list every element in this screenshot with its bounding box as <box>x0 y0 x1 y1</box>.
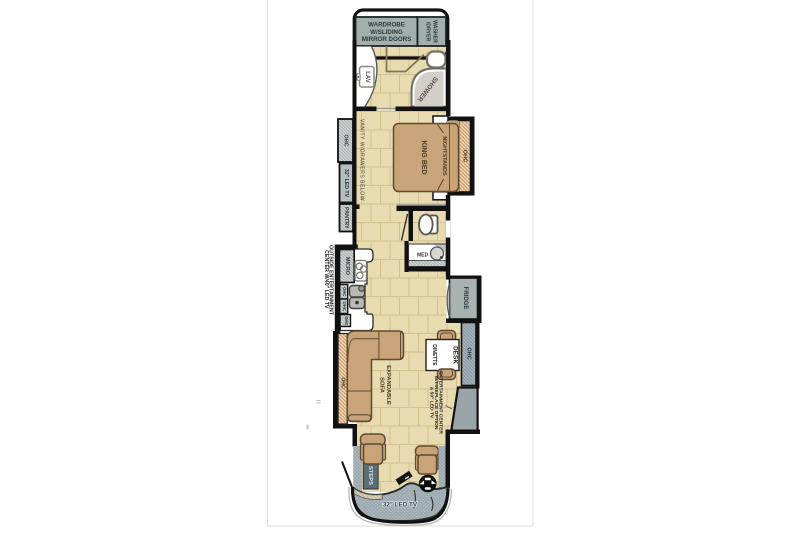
svg-text:OHC: OHC <box>466 347 472 359</box>
svg-text:OHC: OHC <box>344 316 349 325</box>
svg-text:DINETTE: DINETTE <box>431 344 437 366</box>
svg-text:/DRYER: /DRYER <box>425 22 431 42</box>
svg-text:LAV: LAV <box>364 71 370 83</box>
svg-text:MIRROR DOORS: MIRROR DOORS <box>362 36 412 43</box>
svg-text:OHC: OHC <box>342 134 348 146</box>
svg-text:WARDROBE: WARDROBE <box>368 21 405 28</box>
svg-text:OHC: OHC <box>342 287 347 296</box>
svg-text:NIGHTSTANDS: NIGHTSTANDS <box>441 136 447 176</box>
svg-text:32" LED TV: 32" LED TV <box>383 502 418 509</box>
svg-text:VANITY W/DRAWERS BELOW: VANITY W/DRAWERS BELOW <box>358 119 364 201</box>
svg-text:KING BED: KING BED <box>420 140 427 174</box>
svg-text:FRIDGE: FRIDGE <box>462 287 468 310</box>
svg-text:SOFA: SOFA <box>378 377 384 394</box>
svg-text:WASHER: WASHER <box>432 20 438 43</box>
svg-text:W/SLIDING: W/SLIDING <box>370 29 403 36</box>
svg-text:MED: MED <box>417 253 429 259</box>
svg-text:MICRO: MICRO <box>344 257 350 275</box>
svg-text:OHC: OHC <box>461 150 467 164</box>
svg-text:DESK: DESK <box>451 346 458 364</box>
svg-text:OHC: OHC <box>342 302 347 311</box>
svg-text:32" LED TV: 32" LED TV <box>343 169 349 198</box>
svg-text:EXPANDABLE: EXPANDABLE <box>385 365 391 405</box>
svg-text:STEPS: STEPS <box>367 466 373 485</box>
svg-text:CENTER W/40" LED TV: CENTER W/40" LED TV <box>323 250 329 309</box>
svg-text:PANTRY: PANTRY <box>343 207 349 229</box>
svg-text:& 50" LED TV: & 50" LED TV <box>428 387 434 419</box>
svg-text:OHC: OHC <box>340 377 346 389</box>
